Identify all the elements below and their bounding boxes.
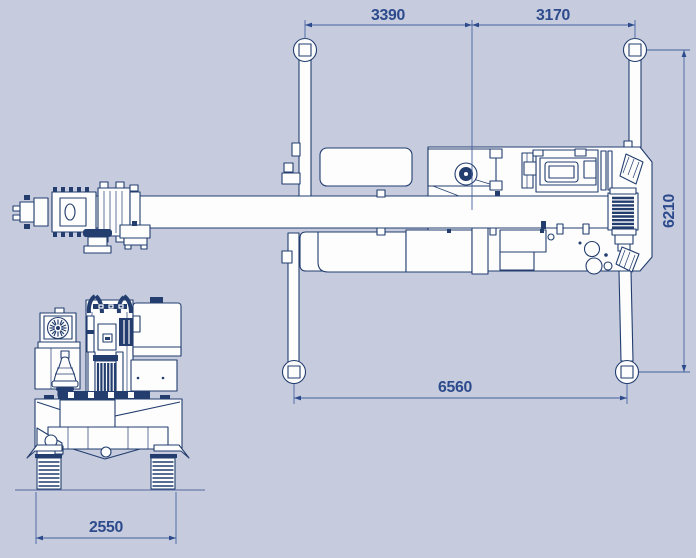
dimension-front-width: 2550	[36, 492, 176, 544]
crane-outrigger-drawing: 3390 3170 6210 6560 255	[0, 0, 696, 558]
dimensions: 3390 3170 6210 6560 255	[36, 7, 690, 544]
cab	[131, 297, 181, 391]
dimension-top: 3390 3170	[305, 7, 635, 39]
dim-top-left-label: 3390	[371, 7, 405, 24]
left-cabinet	[35, 348, 80, 396]
outrigger-beam-front-right	[282, 233, 299, 363]
dim-bottom-label: 6560	[438, 379, 472, 396]
outrigger-pad-rear-left	[624, 39, 647, 62]
blueprint-canvas: 3390 3170 6210 6560 255	[0, 0, 696, 558]
outrigger-beam-rear-left	[624, 55, 641, 149]
outrigger-pad-front-right	[283, 361, 306, 384]
front-deck-panel	[320, 148, 412, 186]
fan-unit	[38, 308, 80, 348]
fan-icon	[48, 318, 69, 339]
dim-front-width-label: 2550	[89, 519, 123, 536]
front-view	[15, 296, 205, 490]
outrigger-pad-rear-right	[616, 361, 639, 384]
undercarriage	[27, 395, 189, 459]
cable-drum	[88, 352, 123, 397]
outrigger-pad-front-left	[294, 39, 317, 62]
outrigger-beam-rear-right	[619, 271, 633, 361]
dim-right-label: 6210	[661, 194, 678, 228]
turntable	[58, 391, 150, 399]
wheel-right	[150, 454, 177, 489]
dimension-bottom: 6560	[294, 379, 627, 404]
boom-support-bracket	[120, 221, 150, 249]
dim-top-right-label: 3170	[536, 7, 570, 24]
outrigger-beam-front-left	[282, 55, 311, 196]
wheel-left	[35, 454, 62, 489]
